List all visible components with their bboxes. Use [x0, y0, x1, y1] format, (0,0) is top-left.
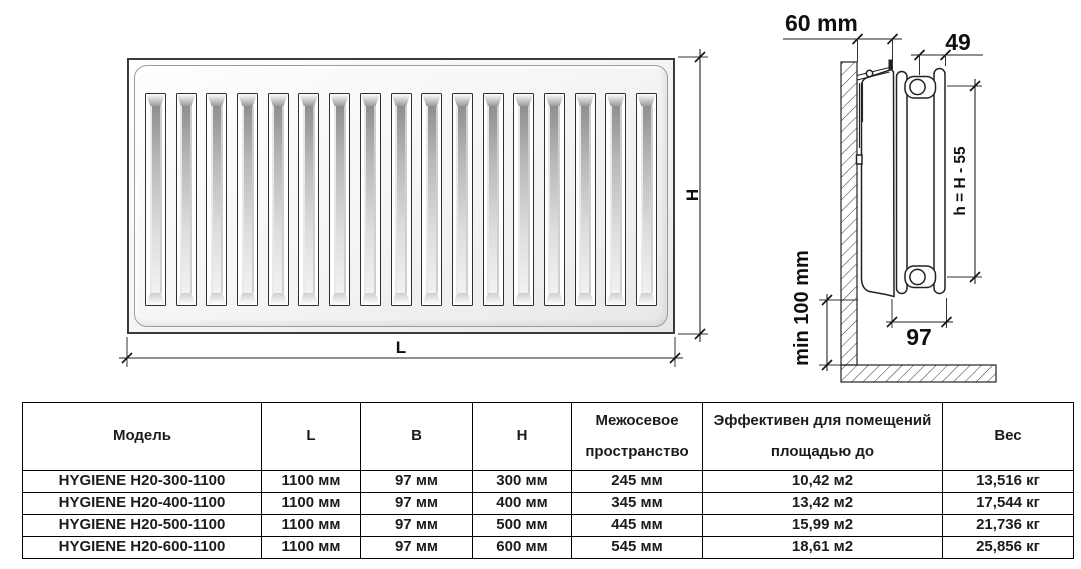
depth-label: 97 [906, 324, 932, 350]
cell-height: 600 мм [473, 537, 572, 559]
cell-weight: 25,856 кг [943, 537, 1074, 559]
header-depth: B [361, 403, 473, 471]
cell-model: HYGIENE H20-600-1100 [23, 537, 262, 559]
front-height-dimension: H [678, 49, 708, 342]
table-row: HYGIENE H20-400-1100 1100 мм 97 мм 400 м… [23, 493, 1074, 515]
panel-height-label: h = H - 55 [952, 146, 969, 216]
floor-hatched [841, 365, 996, 382]
header-height: H [473, 403, 572, 471]
front-height-label: H [683, 189, 702, 201]
top-gap-label: 49 [945, 29, 971, 55]
side-wall-offset-dimension: 60 mm [783, 10, 902, 66]
cell-length: 1100 мм [262, 471, 361, 493]
cell-depth: 97 мм [361, 471, 473, 493]
cell-length: 1100 мм [262, 537, 361, 559]
side-tube-back [934, 69, 945, 294]
cell-axis-spacing: 245 мм [572, 471, 703, 493]
table-header-row: Модель L B H Межосевое пространство Эффе… [23, 403, 1074, 471]
cell-weight: 17,544 кг [943, 493, 1074, 515]
cell-axis-spacing: 545 мм [572, 537, 703, 559]
cell-model: HYGIENE H20-400-1100 [23, 493, 262, 515]
side-panel-height-dimension: h = H - 55 [947, 79, 982, 284]
cell-effective-area: 15,99 м2 [703, 515, 943, 537]
cell-height: 500 мм [473, 515, 572, 537]
side-top-gap-dimension: 49 [911, 29, 983, 75]
front-length-label: L [396, 338, 406, 357]
header-effective-area: Эффективен для помещений площадью до [703, 403, 943, 471]
cell-effective-area: 18,61 м2 [703, 537, 943, 559]
bottom-connector [905, 266, 936, 288]
cell-effective-area: 13,42 м2 [703, 493, 943, 515]
radiator-spec-sheet: L H [0, 0, 1081, 569]
table-row: HYGIENE H20-300-1100 1100 мм 97 мм 300 м… [23, 471, 1074, 493]
table-row: HYGIENE H20-600-1100 1100 мм 97 мм 600 м… [23, 537, 1074, 559]
floor-clearance-label: min 100 mm [791, 250, 813, 366]
table-row: HYGIENE H20-500-1100 1100 мм 97 мм 500 м… [23, 515, 1074, 537]
cell-length: 1100 мм [262, 493, 361, 515]
cell-effective-area: 10,42 м2 [703, 471, 943, 493]
side-tube-front [897, 72, 908, 294]
technical-drawing: L H [0, 0, 1081, 400]
cell-axis-spacing: 345 мм [572, 493, 703, 515]
cell-height: 300 мм [473, 471, 572, 493]
side-panel [862, 70, 895, 297]
cell-axis-spacing: 445 мм [572, 515, 703, 537]
wall-offset-label: 60 mm [785, 10, 858, 36]
wall-hatched [841, 62, 857, 365]
cell-model: HYGIENE H20-300-1100 [23, 471, 262, 493]
top-connector [905, 77, 936, 99]
cell-depth: 97 мм [361, 537, 473, 559]
header-weight: Вес [943, 403, 1074, 471]
spec-table: Модель L B H Межосевое пространство Эффе… [22, 402, 1074, 559]
cell-weight: 13,516 кг [943, 471, 1074, 493]
cell-weight: 21,736 кг [943, 515, 1074, 537]
cell-height: 400 мм [473, 493, 572, 515]
header-length: L [262, 403, 361, 471]
cell-depth: 97 мм [361, 515, 473, 537]
cell-length: 1100 мм [262, 515, 361, 537]
front-length-dimension: L [119, 337, 683, 367]
header-axis-spacing: Межосевое пространство [572, 403, 703, 471]
cell-depth: 97 мм [361, 493, 473, 515]
cell-model: HYGIENE H20-500-1100 [23, 515, 262, 537]
header-model: Модель [23, 403, 262, 471]
side-depth-dimension: 97 [886, 298, 953, 350]
